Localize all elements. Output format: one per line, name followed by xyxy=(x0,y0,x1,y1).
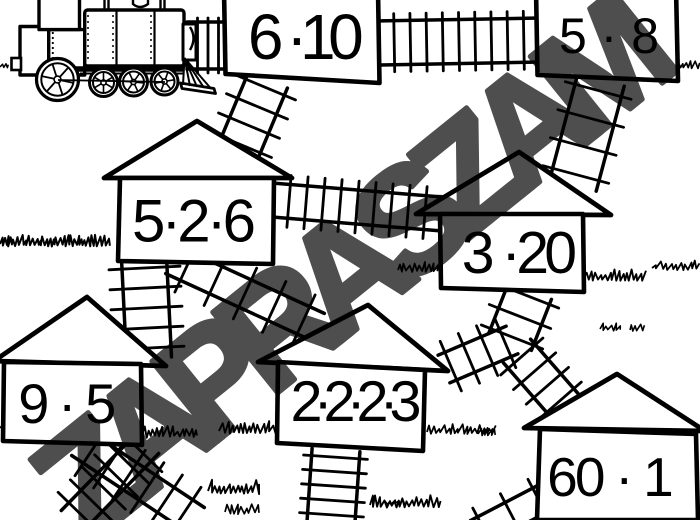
svg-text:ZAPRASZAM: ZAPRASZAM xyxy=(2,0,698,520)
